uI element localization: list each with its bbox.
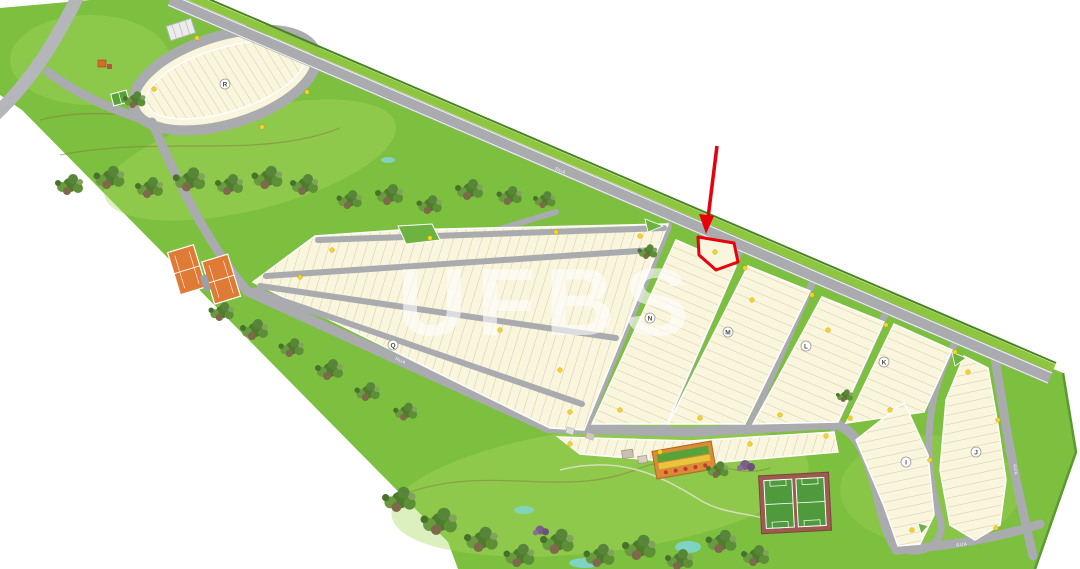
svg-text:I: I [905, 460, 907, 467]
svg-text:J: J [974, 450, 978, 457]
watermark: UFBS [397, 249, 698, 356]
block-badge-l: L [801, 341, 811, 351]
master-plan-image: R Q N M L K I J RUA [0, 0, 1080, 569]
block-badge-i: I [901, 457, 911, 467]
svg-text:Q: Q [390, 343, 395, 350]
block-badge-j: J [971, 447, 981, 457]
master-plan-map: R Q N M L K I J RUA [0, 0, 1080, 569]
block-badge-r: R [220, 79, 230, 89]
svg-text:M: M [725, 330, 730, 337]
highlighted-lot-marker [713, 250, 718, 255]
svg-text:R: R [223, 82, 228, 89]
block-badge-k: K [879, 357, 889, 367]
highlight [698, 146, 738, 270]
soccer-fields [759, 472, 832, 534]
block-badge-m: M [723, 327, 733, 337]
svg-text:K: K [882, 360, 887, 367]
svg-text:L: L [804, 344, 808, 351]
